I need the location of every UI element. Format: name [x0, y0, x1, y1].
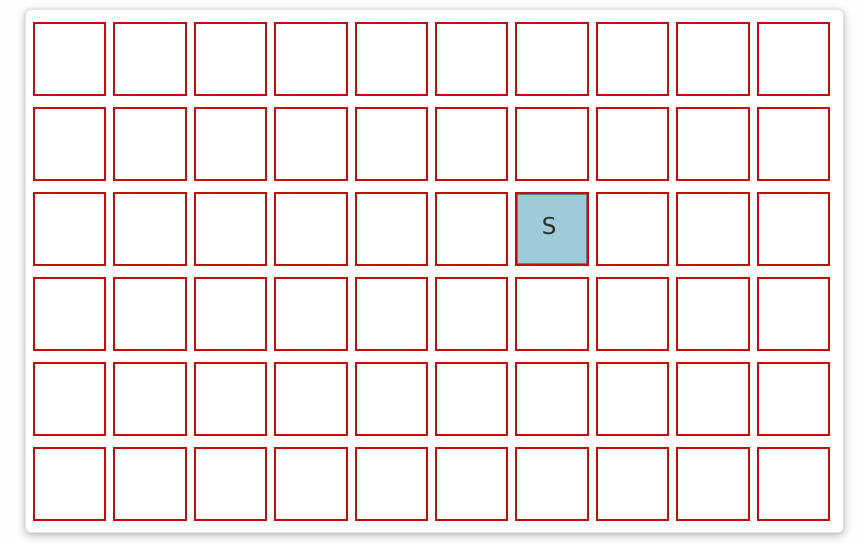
grid-cell[interactable] — [355, 362, 428, 436]
grid-cell[interactable] — [676, 362, 749, 436]
grid-cell[interactable] — [435, 107, 508, 181]
grid-cell[interactable] — [113, 107, 186, 181]
grid-cell[interactable] — [194, 277, 267, 351]
grid-cell[interactable] — [435, 447, 508, 521]
grid-cell[interactable] — [113, 192, 186, 266]
grid-cell[interactable] — [515, 362, 588, 436]
grid-cell[interactable] — [757, 362, 830, 436]
page-background: S — [0, 0, 865, 544]
grid-cell[interactable] — [596, 22, 669, 96]
grid-cell[interactable] — [113, 277, 186, 351]
grid-cell[interactable] — [33, 22, 106, 96]
grid-cell[interactable] — [676, 447, 749, 521]
grid-cell[interactable] — [596, 277, 669, 351]
grid-cell[interactable] — [274, 22, 347, 96]
grid-cell[interactable] — [194, 107, 267, 181]
start-cell-label: S — [542, 216, 557, 239]
grid-cell[interactable] — [194, 362, 267, 436]
grid-cell-start[interactable]: S — [515, 192, 588, 266]
grid-cell[interactable] — [274, 107, 347, 181]
grid-cell[interactable] — [596, 447, 669, 521]
grid-cell[interactable] — [33, 277, 106, 351]
grid-cell[interactable] — [274, 447, 347, 521]
grid-cell[interactable] — [113, 22, 186, 96]
grid-cell[interactable] — [676, 22, 749, 96]
grid-cell[interactable] — [274, 192, 347, 266]
grid-cell[interactable] — [113, 447, 186, 521]
grid-cell[interactable] — [33, 447, 106, 521]
grid-cell[interactable] — [757, 277, 830, 351]
grid-cell[interactable] — [355, 22, 428, 96]
grid-cell[interactable] — [757, 22, 830, 96]
grid-cell[interactable] — [33, 362, 106, 436]
grid-cell[interactable] — [435, 277, 508, 351]
grid-cell[interactable] — [194, 447, 267, 521]
grid-cell[interactable] — [515, 22, 588, 96]
grid-cell[interactable] — [33, 192, 106, 266]
grid-cell[interactable] — [435, 22, 508, 96]
grid-cell[interactable] — [596, 107, 669, 181]
grid-cell[interactable] — [757, 107, 830, 181]
grid-cell[interactable] — [274, 362, 347, 436]
grid-cell[interactable] — [757, 192, 830, 266]
grid-cell[interactable] — [676, 277, 749, 351]
grid-board-card: S — [25, 9, 844, 533]
grid-cell[interactable] — [515, 107, 588, 181]
grid-cell[interactable] — [113, 362, 186, 436]
grid-cell[interactable] — [435, 362, 508, 436]
grid-cell[interactable] — [355, 192, 428, 266]
grid-cell[interactable] — [596, 192, 669, 266]
grid-cell[interactable] — [676, 107, 749, 181]
grid-cell[interactable] — [515, 277, 588, 351]
grid-cell[interactable] — [194, 22, 267, 96]
grid-cell[interactable] — [355, 107, 428, 181]
grid-cell[interactable] — [33, 107, 106, 181]
grid-cell[interactable] — [355, 277, 428, 351]
grid-cell[interactable] — [757, 447, 830, 521]
grid-cell[interactable] — [355, 447, 428, 521]
grid-cell[interactable] — [194, 192, 267, 266]
grid-cell[interactable] — [274, 277, 347, 351]
grid-cell[interactable] — [435, 192, 508, 266]
grid-cell[interactable] — [596, 362, 669, 436]
grid-cell[interactable] — [676, 192, 749, 266]
grid-board: S — [33, 22, 830, 521]
grid-cell[interactable] — [515, 447, 588, 521]
